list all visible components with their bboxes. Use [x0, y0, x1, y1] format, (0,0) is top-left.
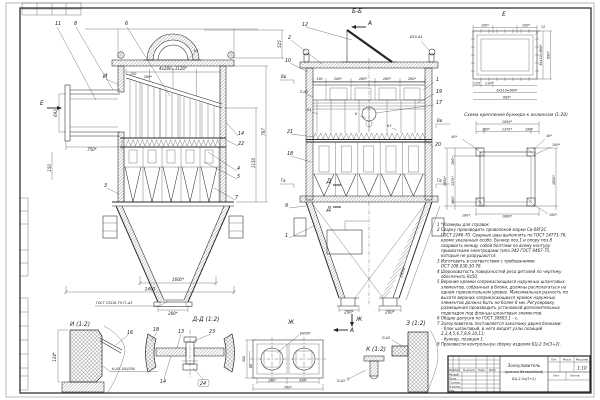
deflector-plate: [347, 30, 392, 62]
scheme-caption: Схема крепления бункера к колоннам (1:20…: [464, 112, 568, 118]
section-bb: Б-Б А: [280, 9, 450, 334]
callout-20: 20: [435, 142, 441, 148]
scheme-dim-180l1: 180*: [451, 157, 455, 165]
detail-z-weld: П-Δ3: [382, 336, 390, 340]
e-dim-100b: 100*: [522, 24, 530, 28]
callout-7: 7: [235, 195, 238, 201]
detail-k-title: К (1:2): [366, 347, 386, 353]
e-dim-690r: 690*: [547, 51, 551, 59]
detail-dd-24: 24: [200, 381, 206, 387]
callout-19: 19: [436, 89, 442, 95]
scheme-columns: [476, 148, 535, 206]
bb-dim-200a: 200*: [344, 310, 354, 315]
callout-6: 6: [125, 21, 128, 27]
scheme-dim-1850l: 1850*: [443, 176, 447, 186]
callout-10: 10: [285, 58, 291, 64]
cut-a-top: А: [367, 21, 372, 27]
view-zh-80: 80: [249, 364, 253, 368]
tb-col-list: Лист: [454, 368, 461, 372]
left-margin-tables: [20, 198, 28, 390]
left-wall-upper: [118, 66, 124, 92]
e-dim-125: 125: [474, 82, 480, 86]
view-zh-title: Ж: [287, 320, 295, 326]
cut-a-bottom: А: [349, 328, 354, 334]
tb-massa: Масса: [563, 357, 571, 361]
callout-8: 8: [74, 21, 77, 27]
detail-dd-14: 14: [160, 379, 166, 385]
access-box: [327, 230, 362, 254]
detail-i-title: И (1:2): [70, 322, 90, 328]
tb-col-doc: № докум.: [463, 369, 476, 372]
title-block: Изм. Лист № докум. Подп. Дата Разраб. Пр…: [448, 356, 590, 392]
bb-weld-k: К: [355, 112, 358, 116]
scheme-dim-180bm: 180*: [462, 214, 470, 218]
note-line: 8 Произвести контрольную сборку изделия …: [437, 342, 561, 347]
bb-dim-280c: 280*: [383, 77, 391, 81]
dim-525: 525: [277, 40, 282, 48]
callout-17: 17: [436, 100, 442, 106]
scheme-dim-1370: 1370*: [502, 128, 512, 132]
callout-3: 3: [104, 183, 107, 189]
dim-top-pitch: 4х280=1120*: [159, 66, 187, 71]
e-callout-12: 12: [541, 25, 545, 29]
scheme-dim-180b: 180*: [525, 128, 533, 132]
bb-weld-p: П-Δ3: [300, 90, 308, 94]
bb-bag-elements: [313, 142, 425, 196]
tb-doc-name-1: Золоуловитель: [508, 363, 541, 368]
scheme-dim-1370l: 1370*: [451, 176, 455, 186]
dim-280: 280*: [144, 75, 152, 79]
left-view-dim-lines: [52, 29, 284, 312]
view-zh-mark: Ж: [355, 317, 363, 323]
level-gv-left: Гв: [281, 178, 286, 183]
callout-21: 21: [287, 129, 293, 135]
e-dim-690b: 690*: [503, 96, 511, 100]
bb-dim-150: 150: [316, 77, 322, 81]
view-zh-760: 760*: [284, 386, 292, 390]
e-dim-110: 110*: [485, 82, 493, 86]
detail-dd-18: 18: [153, 327, 159, 333]
tb-list: Лист: [553, 374, 560, 378]
callout-18: 18: [287, 151, 293, 157]
drawing-canvas: 11 8 6 И Е К2 4х280=1120* 692 750* 150 2…: [0, 0, 600, 400]
top-left-margin-table: [22, 3, 81, 15]
cut-d-mark-1: Д: [325, 179, 331, 185]
e-dim-660r: 6х110=660*: [539, 44, 543, 65]
callout-9: 9: [285, 203, 288, 209]
detail-k-weld: П-Δ3: [337, 379, 345, 383]
mounting-scheme: Схема крепления бункера к колоннам (1:20…: [443, 112, 568, 219]
bb-dim-200b: 200*: [385, 310, 395, 315]
view-zh-300: 300: [242, 356, 246, 362]
level-gv-right: Гв: [437, 178, 442, 183]
cut-d-mark-2: Д: [325, 207, 331, 213]
hopper: [116, 206, 230, 307]
e-dim-660b: 6х110=660*: [496, 89, 517, 93]
support-lug-right: [229, 216, 243, 238]
detail-i-mark: И: [103, 74, 108, 80]
level-bv-right: Вв: [437, 118, 443, 123]
dim-787: 787: [261, 128, 266, 136]
left-view: 11 8 6 И Е К2 4х280=1120* 692 750* 150 2…: [40, 21, 284, 316]
bb-left-wall: [306, 68, 313, 200]
technical-notes: 1 *Размеры для справок. 2 Сварку произво…: [437, 222, 568, 347]
tb-doc-name-3: БЦ-2-5х(3+2): [512, 377, 536, 381]
support-lug-left: [103, 216, 117, 238]
detail-i: И (1:2) 16 124* Н-Δ3-100/200: [52, 322, 158, 392]
callout-12: 12: [302, 22, 308, 28]
bb-weld-k3: К3: [387, 124, 391, 128]
dim-2400: 2400: [145, 287, 156, 292]
detail-z-title: З (1:2): [406, 321, 425, 327]
bb-hopper: [306, 202, 432, 306]
tb-masshtab: Масштаб: [576, 357, 588, 361]
dim-150: 150: [130, 72, 136, 76]
bb-dim-280d: 280*: [408, 77, 416, 81]
callout-14: 14: [238, 131, 244, 137]
dim-200: 200*: [168, 311, 178, 316]
dim-750: 750*: [87, 147, 97, 152]
scheme-dim-180a: 180*: [482, 128, 490, 132]
left-wall-lower: [118, 132, 124, 202]
scheme-dim-100a: 100*: [552, 143, 560, 147]
tb-lit: Лит.: [551, 357, 557, 361]
scheme-dim-100b: 100*: [549, 213, 557, 217]
detail-z: З (1:2) П-Δ3: [382, 321, 438, 394]
view-e-title: Е: [502, 12, 506, 18]
view-zh: Ж Ø450* 300 80 180* 450* 760*: [242, 320, 326, 391]
detail-dd-title: Д-Д (1:2): [192, 317, 220, 323]
insulation-block: [70, 330, 102, 382]
view-zh-dims: [245, 335, 323, 391]
detail-i-dim-124: 124*: [52, 352, 57, 362]
tb-col-podp: Подп.: [478, 368, 486, 372]
callout-1b: 1: [285, 233, 288, 239]
bb-dim-280a: 280*: [334, 77, 342, 81]
weld-gost-label: ГОСТ 23518-79-Т1-Δ3: [96, 301, 133, 305]
drawing-sheet: 11 8 6 И Е К2 4х280=1120* 692 750* 150 2…: [0, 0, 600, 400]
detail-dd-13: 13: [178, 329, 184, 335]
dim-150-side: 150: [47, 164, 52, 172]
level-bv-left: Вв: [281, 74, 287, 79]
detail-dd-23: 23: [209, 329, 215, 335]
bb-dim-280b: 280*: [359, 77, 367, 81]
callout-5: 5: [237, 174, 240, 180]
callout-11: 11: [55, 21, 61, 27]
detail-dd: Д-Д (1:2) 18 13 23 14 24: [146, 317, 235, 387]
detail-i-callout-16: 16: [127, 330, 133, 336]
weld-k2: К2: [194, 49, 198, 53]
scheme-dim-1850t: 1850*: [502, 120, 512, 124]
dim-1600: 1600*: [172, 277, 184, 282]
detail-i-weld: Н-Δ3-100/200: [112, 367, 135, 371]
dim-1150: 1150: [251, 157, 256, 168]
callout-2: 2: [288, 35, 291, 41]
detail-k: К (1:2) П-Δ3: [337, 347, 386, 383]
callout-4: 4: [237, 166, 240, 172]
tb-col-data: Дата: [489, 368, 496, 372]
bb-weld-k1: К1: [307, 108, 311, 112]
scheme-dim-1600: 1600*: [502, 215, 512, 219]
tb-doc-name-2: (циклон батарейный): [505, 370, 544, 374]
view-zh-180: 180*: [268, 379, 276, 383]
view-zh-450: 450*: [299, 379, 307, 383]
tb-scale-value: 1:10: [577, 366, 587, 371]
callout-1: 1: [436, 77, 439, 83]
view-e-mark: Е: [40, 101, 44, 107]
dim-692: 692: [53, 109, 58, 117]
scheme-dim-180l2: 180*: [451, 196, 455, 204]
scheme-dim-1850r: 1850*: [552, 175, 556, 185]
view-zh-dia: Ø450*: [299, 331, 311, 336]
e-dim-100a: 100*: [481, 24, 489, 28]
tb-row-utv: Утв.: [449, 388, 455, 392]
bb-hole-note: Ø18-Δ4: [409, 34, 422, 39]
scheme-dim-lines: [444, 121, 558, 216]
callout-22: 22: [238, 141, 244, 147]
view-e: Е 100* 100* 12 6х110=660* 690* 125 110* …: [471, 12, 552, 100]
bb-lug-left: [294, 218, 306, 236]
bag-elements: [124, 147, 222, 202]
tb-listov: Листов: [570, 374, 580, 378]
scheme-dim-40b: 40*: [546, 134, 552, 138]
scheme-dim-40a: 40*: [451, 135, 457, 139]
section-bb-title: Б-Б: [352, 9, 362, 15]
right-wall: [220, 66, 226, 202]
